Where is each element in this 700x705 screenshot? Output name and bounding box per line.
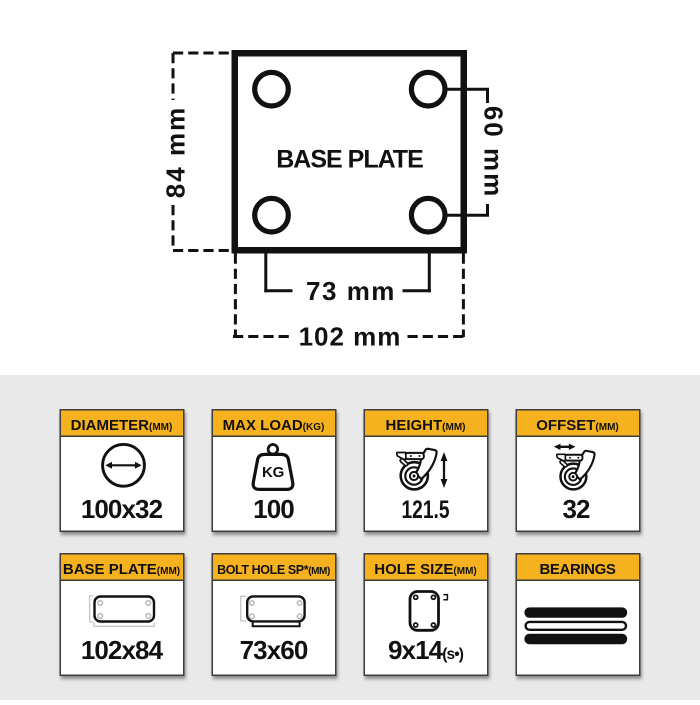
svg-text:73 mm: 73 mm — [306, 276, 396, 306]
svg-text:84 mm: 84 mm — [161, 106, 191, 198]
svg-text:102x84: 102x84 — [81, 635, 164, 665]
svg-text:32: 32 — [562, 494, 590, 524]
svg-text:100x32: 100x32 — [81, 494, 163, 524]
svg-text:100: 100 — [253, 494, 294, 524]
svg-text:60 mm: 60 mm — [479, 106, 509, 198]
svg-text:73x60: 73x60 — [240, 635, 308, 665]
svg-text:BOLT HOLE SP*(MM): BOLT HOLE SP*(MM) — [217, 563, 330, 577]
svg-text:BEARINGS: BEARINGS — [540, 561, 616, 578]
svg-text:102 mm: 102 mm — [299, 321, 402, 351]
svg-text:BASE PLATE: BASE PLATE — [276, 145, 423, 173]
svg-text:121.5: 121.5 — [402, 496, 450, 524]
svg-text:KG: KG — [262, 464, 284, 481]
